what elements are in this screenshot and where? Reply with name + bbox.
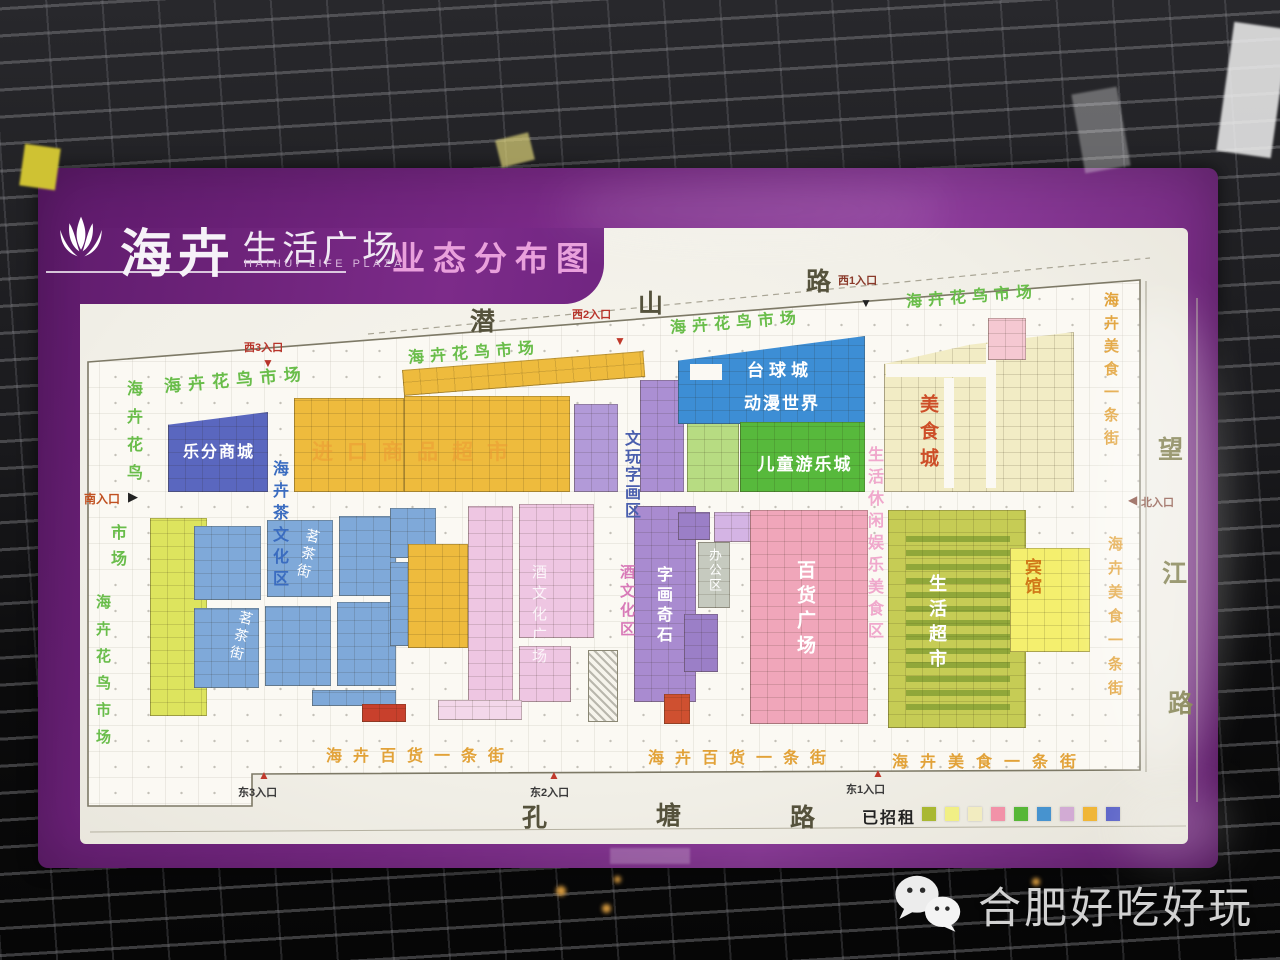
zone-red-unit-1 <box>362 704 406 722</box>
tape-yellow-topcenter <box>495 132 535 167</box>
label-anime-world: 动漫世界 <box>726 389 838 414</box>
zone-purple-small-2 <box>684 614 718 672</box>
entrance-east3-arrow-icon: ▲ <box>258 768 270 782</box>
label-tea-culture-zone: 海卉茶文化区 <box>266 460 290 592</box>
zone-wine-pink-a <box>468 506 513 716</box>
tape-yellow-topleft <box>19 144 60 191</box>
road-kongtang-char-1: 塘 <box>656 796 681 832</box>
zone-purple-strip-2 <box>640 380 684 492</box>
wechat-icon <box>893 872 965 934</box>
brand-latin: HAIHUI LIFE PLAZA <box>244 258 405 270</box>
supermarket-shelf-rows <box>906 532 1010 710</box>
entrance-west3: 西3入口 <box>244 339 283 355</box>
entrance-west2: 西2入口 <box>572 306 611 322</box>
entrance-south-arrow-icon: ▶ <box>128 489 138 505</box>
label-billiards: 台球城 <box>724 356 836 381</box>
label-flower-bird-market-west: 海卉花鸟市场 <box>92 594 113 756</box>
legend-swatch-3 <box>991 807 1005 821</box>
zone-wine-pink-d <box>438 700 522 720</box>
zone-tea-b6 <box>337 602 396 686</box>
label-food-street-east-2: 海卉美食一条街 <box>1104 536 1125 704</box>
entrance-north: 北入口 <box>1141 494 1174 510</box>
billiards-white-notch <box>690 364 722 380</box>
entrance-east2-arrow-icon: ▲ <box>548 768 560 782</box>
legend-swatch-4 <box>1014 807 1028 821</box>
entrance-west1: 西1入口 <box>838 272 877 288</box>
road-kongtang-char-2: 路 <box>790 798 815 834</box>
entrance-east1-arrow-icon: ▲ <box>872 766 884 780</box>
food-city-aisle-v2 <box>986 344 996 488</box>
zone-tea-b3 <box>339 516 396 596</box>
entrance-west3-arrow-icon: ▼ <box>262 356 274 370</box>
light-dot-1 <box>556 886 566 896</box>
road-qianshan-char-1: 山 <box>638 284 663 320</box>
label-dept-street-2: 海卉百货一条街 <box>648 744 854 768</box>
label-dept-store-plaza: 百货广场 <box>791 560 818 660</box>
label-supermarket: 生活超市 <box>924 574 950 674</box>
label-dept-street-1: 海卉百货一条街 <box>326 742 538 766</box>
entrance-east1: 东1入口 <box>846 781 885 797</box>
light-dot-2 <box>602 904 611 913</box>
road-wangjiang-char-0: 望 <box>1158 430 1183 466</box>
label-import-supermarket: 进口商品超市 <box>312 436 642 466</box>
zone-lilac-small <box>714 512 752 542</box>
food-city-aisle-h <box>886 364 988 377</box>
label-kids-city: 儿童游乐城 <box>748 450 862 475</box>
label-calligraphy-stone: 字画奇石 <box>650 566 674 646</box>
zone-yellow-mid <box>408 544 468 648</box>
legend-swatch-1 <box>945 807 959 821</box>
entrance-west1-arrow-icon: ▼ <box>860 296 872 310</box>
watermark-text: 合肥好吃好玩 <box>978 874 1254 936</box>
entrance-east3: 东3入口 <box>238 784 277 800</box>
label-food-street-east-1: 海卉美食一条街 <box>1100 292 1121 453</box>
label-wine-zone: 酒文化区 <box>616 564 637 640</box>
legend-swatch-5 <box>1037 807 1051 821</box>
tape-white-topright <box>1216 22 1280 158</box>
label-food-street-south: 海卉美食一条街 <box>892 748 1106 772</box>
zone-pink-small <box>988 318 1026 360</box>
label-market-west: 市场 <box>104 524 128 576</box>
page-title: 业态分布图 <box>392 232 597 280</box>
photo-scene: 海卉 生活广场 HAIHUI LIFE PLAZA 业态分布图 <box>0 0 1280 960</box>
legend-swatch-7 <box>1083 807 1097 821</box>
road-wangjiang-char-2: 路 <box>1168 684 1193 720</box>
lotus-logo-icon <box>52 208 110 270</box>
entrance-west2-arrow-icon: ▼ <box>614 334 626 348</box>
zone-hatched-area <box>588 650 618 722</box>
tape-white-bottom <box>610 848 690 864</box>
road-qianshan-char-0: 潜 <box>470 302 495 338</box>
zone-tea-b1 <box>194 526 261 600</box>
entrance-south: 南入口 <box>84 490 120 507</box>
label-food-city: 美食城 <box>914 394 941 475</box>
light-dot-3 <box>614 876 621 883</box>
brand-name: 海卉 <box>120 212 236 287</box>
legend-swatch-6 <box>1060 807 1074 821</box>
food-city-aisle-v1 <box>944 378 954 488</box>
legend-swatch-8 <box>1106 807 1120 821</box>
tape-white-top <box>1071 87 1130 174</box>
legend-swatch-0 <box>922 807 936 821</box>
legend-swatch-2 <box>968 807 982 821</box>
label-flower-bird-west: 海卉花鸟 <box>120 380 144 492</box>
zone-tea-b5 <box>265 606 331 686</box>
label-office-zone: 办公区 <box>705 548 724 593</box>
label-wine-plaza-watermark: 酒文化广场 <box>528 564 549 669</box>
road-wangjiang-char-1: 江 <box>1162 554 1187 590</box>
zone-red-unit-2 <box>664 694 690 724</box>
label-leisure-food-zone: 生活休闲娱乐美食区 <box>861 446 885 644</box>
road-kongtang-char-0: 孔 <box>522 798 547 834</box>
label-wenwan-zone: 文玩字画区 <box>618 430 642 520</box>
label-hotel: 宾馆 <box>1019 558 1044 596</box>
entrance-east2: 东2入口 <box>530 784 569 800</box>
road-qianshan-char-2: 路 <box>806 262 831 298</box>
zone-purple-small-1 <box>678 512 710 540</box>
legend-label: 已招租 <box>862 804 916 828</box>
label-lefen-mall: 乐分商城 <box>176 438 262 462</box>
entrance-north-arrow-icon: ◀ <box>1128 493 1137 507</box>
